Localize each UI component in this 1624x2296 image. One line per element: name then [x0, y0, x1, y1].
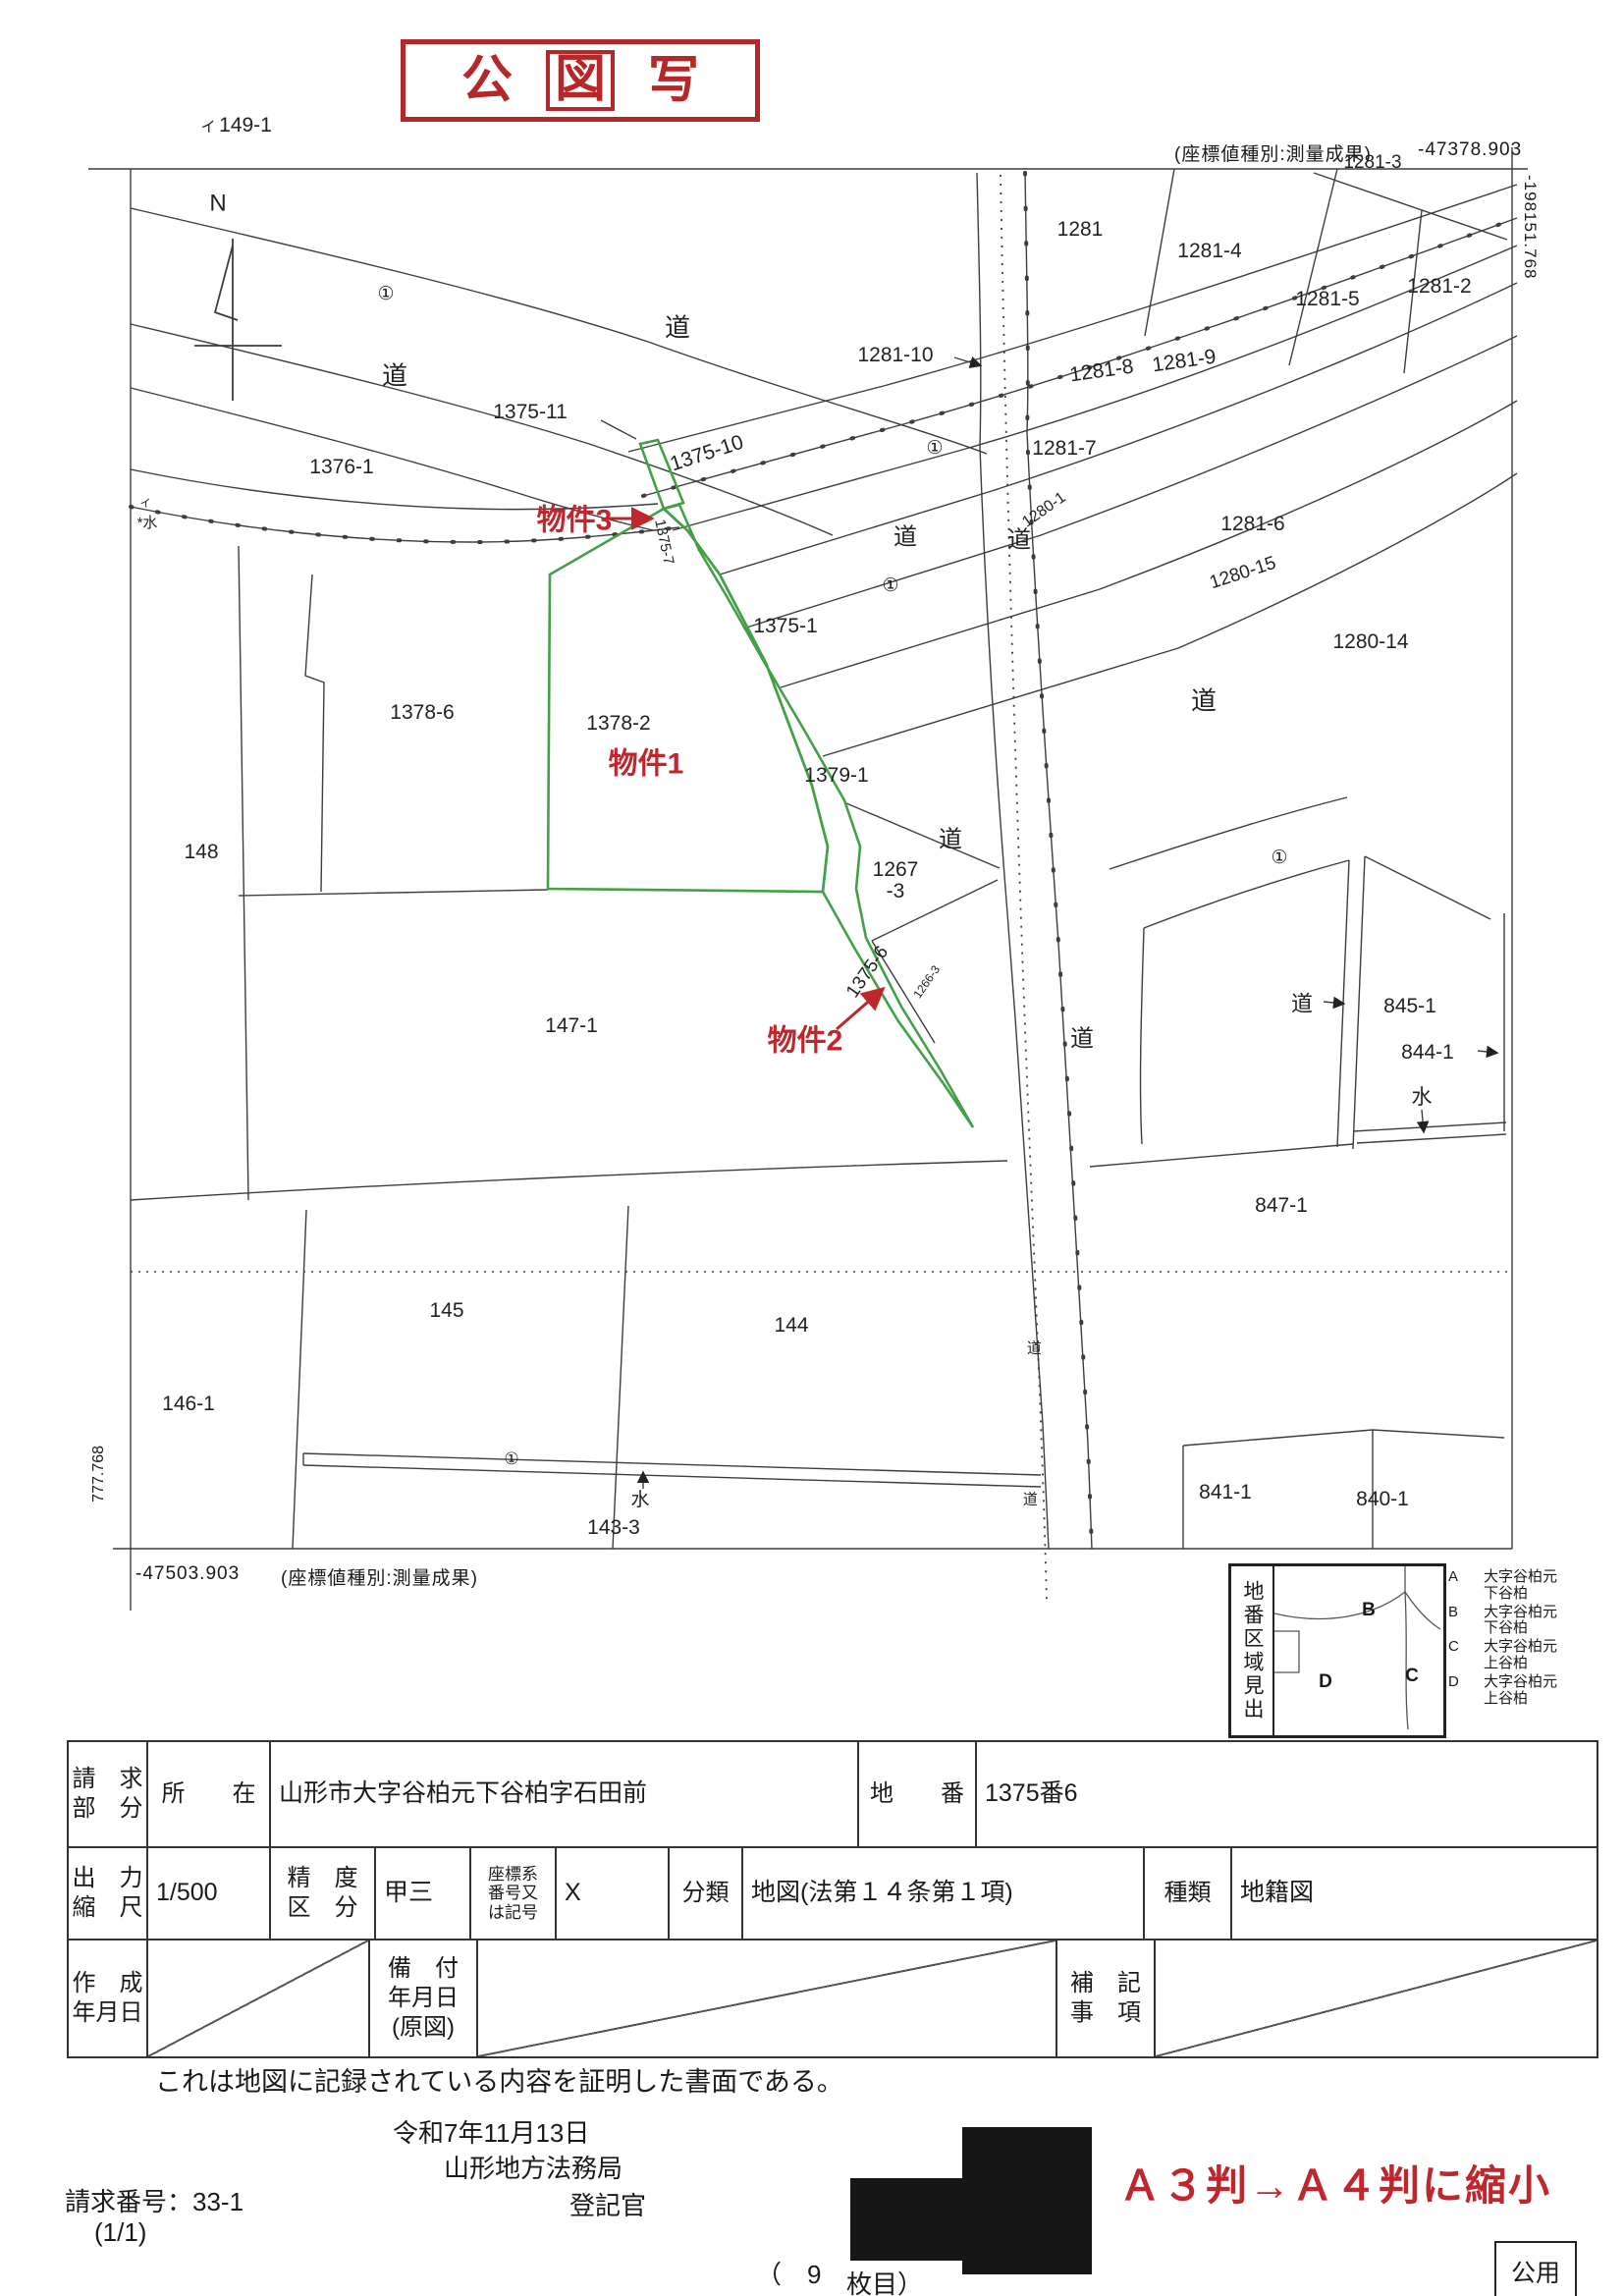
td-lot-number-value: 1375番6 — [977, 1742, 1597, 1846]
index-legend-text: 大字谷柏元 上谷柏 — [1484, 1639, 1557, 1672]
water-label: 水 — [1412, 1087, 1433, 1109]
district-index-box: 地番区域見出 BCD — [1228, 1563, 1446, 1738]
th-coordinate-system: 座標系番号又は記号 — [471, 1848, 557, 1939]
index-legend-key: B — [1448, 1605, 1484, 1638]
water-mark: *水 — [137, 516, 158, 531]
certificate-table: 請 求部 分 所 在 山形市大字谷柏元下谷柏字石田前 地 番 1375番6 出 … — [67, 1740, 1598, 2058]
index-region-label: D — [1319, 1671, 1332, 1693]
road-label: 道 — [1191, 687, 1217, 714]
north-label: N — [209, 191, 226, 215]
th-filing-date: 備 付年月日(原図) — [370, 1941, 478, 2056]
index-legend-row: D大字谷柏元 上谷柏 — [1448, 1674, 1615, 1708]
parcel-label: 1375-1 — [753, 616, 817, 637]
parcel-label: 1376-1 — [309, 457, 373, 478]
th-location: 所 在 — [148, 1742, 271, 1846]
index-legend-key: A — [1448, 1569, 1484, 1603]
road-label: 道 — [1291, 992, 1313, 1014]
index-mini-map: BCD — [1274, 1566, 1443, 1735]
td-classification-value: 地図(法第１４条第１項) — [743, 1848, 1145, 1939]
index-region-label: C — [1405, 1666, 1419, 1687]
parcel-label: 1281-5 — [1295, 289, 1359, 310]
parcel-label: 1378-6 — [390, 702, 454, 724]
th-request-part: 請 求部 分 — [69, 1742, 148, 1846]
sheet-number-prefix: （ 9 — [756, 2255, 821, 2291]
index-legend-text: 大字谷柏元 下谷柏 — [1484, 1569, 1557, 1603]
th-kind: 種類 — [1145, 1848, 1232, 1939]
index-title: 地番区域見出 — [1231, 1566, 1274, 1735]
parcel-label: 1281-7 — [1032, 438, 1096, 460]
parcel-label: 844-1 — [1401, 1042, 1454, 1064]
road-label: 道 — [665, 314, 690, 341]
parcel-label: 1281-3 — [1343, 153, 1401, 173]
index-legend: A大字谷柏元 下谷柏B大字谷柏元 下谷柏C大字谷柏元 上谷柏D大字谷柏元 上谷柏 — [1448, 1569, 1615, 1709]
parcel-label: 1281-4 — [1177, 241, 1241, 262]
index-legend-row: A大字谷柏元 下谷柏 — [1448, 1569, 1615, 1603]
td-coordinate-system-value: X — [557, 1848, 670, 1939]
issuing-office: 山形地方法務局 — [444, 2149, 623, 2185]
parcel-label: 1375-11 — [493, 402, 568, 423]
water-label: 水 — [630, 1491, 649, 1510]
certification-date: 令和7年11月13日 — [393, 2113, 589, 2150]
road-label: 道 — [893, 524, 917, 549]
index-legend-key: C — [1448, 1639, 1484, 1672]
property-annotation-2: 物件2 — [768, 1025, 843, 1057]
mark-i: イ — [140, 499, 151, 511]
index-legend-row: C大字谷柏元 上谷柏 — [1448, 1639, 1615, 1672]
official-use-label: 公用 — [1511, 2254, 1560, 2289]
reduction-note: Ａ３判→Ａ４判に縮小 — [1119, 2153, 1571, 2213]
th-precision-class: 精 度区 分 — [271, 1848, 376, 1939]
td-precision-value: 甲三 — [376, 1848, 471, 1939]
road-label: 道 — [1070, 1026, 1094, 1051]
map-linework — [0, 0, 1624, 1611]
td-supplementary-notes-empty — [1156, 1941, 1597, 2056]
parcel-label: 1281-10 — [857, 345, 933, 366]
th-creation-date: 作 成年月日 — [69, 1941, 148, 2056]
sheet-number-suffix: 枚目） — [846, 2265, 923, 2296]
parcel-label: 1281-6 — [1220, 514, 1284, 535]
parcel-label: 143-3 — [587, 1517, 640, 1539]
parcel-label: 845-1 — [1383, 996, 1436, 1017]
road-label: 道 — [1025, 1340, 1041, 1355]
index-legend-text: 大字谷柏元 上谷柏 — [1484, 1674, 1557, 1708]
index-legend-key: D — [1448, 1674, 1484, 1708]
td-location-value: 山形市大字谷柏元下谷柏字石田前 — [271, 1742, 859, 1846]
mark-i: イ — [200, 120, 215, 136]
cadastral-map-certificate: 公 図 写 (座標値種別:測量成果) -47378.903 -198151.76… — [0, 0, 1624, 2296]
parcel-label: 145 — [429, 1300, 463, 1322]
parcel-label: 1280-14 — [1332, 631, 1408, 653]
th-output-scale: 出 力縮 尺 — [69, 1848, 148, 1939]
survey-marker-icon: ① — [504, 1450, 518, 1468]
road-label: 道 — [382, 362, 407, 389]
redacted-stamp — [962, 2127, 1092, 2274]
parcel-label: 1281 — [1057, 219, 1104, 241]
parcel-label: 841-1 — [1199, 1482, 1252, 1503]
parcel-label: 144 — [774, 1315, 808, 1337]
index-legend-text: 大字谷柏元 下谷柏 — [1484, 1605, 1557, 1638]
parcel-label: 1379-1 — [804, 765, 868, 787]
td-kind-value: 地籍図 — [1232, 1848, 1597, 1939]
survey-marker-icon: ① — [882, 576, 898, 596]
registrar-title: 登記官 — [569, 2186, 646, 2222]
th-classification: 分類 — [670, 1848, 743, 1939]
parcel-label: 1281-2 — [1407, 276, 1471, 298]
parcel-label: 147-1 — [545, 1015, 598, 1037]
survey-marker-icon: ① — [377, 285, 394, 304]
index-region-label: B — [1362, 1600, 1376, 1621]
road-label: 道 — [1021, 1492, 1037, 1506]
parcel-label: 840-1 — [1356, 1489, 1409, 1510]
parcel-label: 1267 -3 — [873, 859, 919, 902]
parcel-label: 149-1 — [219, 115, 272, 137]
td-scale-value: 1/500 — [148, 1848, 271, 1939]
parcel-label: 847-1 — [1255, 1195, 1308, 1217]
official-use-box: 公用 — [1494, 2241, 1577, 2296]
certification-statement: これは地図に記録されている内容を証明した書面である。 — [155, 2060, 843, 2099]
redacted-stamp — [850, 2178, 968, 2261]
td-filing-date-empty — [478, 1941, 1057, 2056]
page-number: (1/1) — [94, 2217, 146, 2248]
survey-marker-icon: ① — [1271, 848, 1287, 868]
parcel-label: 146-1 — [162, 1394, 215, 1415]
parcel-label: 148 — [184, 842, 218, 863]
survey-marker-icon: ① — [926, 439, 943, 459]
road-label: 道 — [1007, 527, 1031, 552]
th-lot-number: 地 番 — [859, 1742, 977, 1846]
parcel-label: 1378-2 — [586, 713, 650, 735]
request-number: 請求番号：33-1 — [65, 2182, 244, 2218]
th-supplementary-notes: 補 記事 項 — [1057, 1941, 1156, 2056]
td-creation-date-empty — [148, 1941, 370, 2056]
cadastral-map: イ149-1N道道1376-11375-111375-101375-7イ*水①①… — [0, 0, 1624, 1611]
index-legend-row: B大字谷柏元 下谷柏 — [1448, 1605, 1615, 1638]
road-label: 道 — [939, 827, 962, 851]
property-annotation-3: 物件3 — [537, 505, 613, 536]
property-annotation-1: 物件1 — [609, 748, 684, 780]
